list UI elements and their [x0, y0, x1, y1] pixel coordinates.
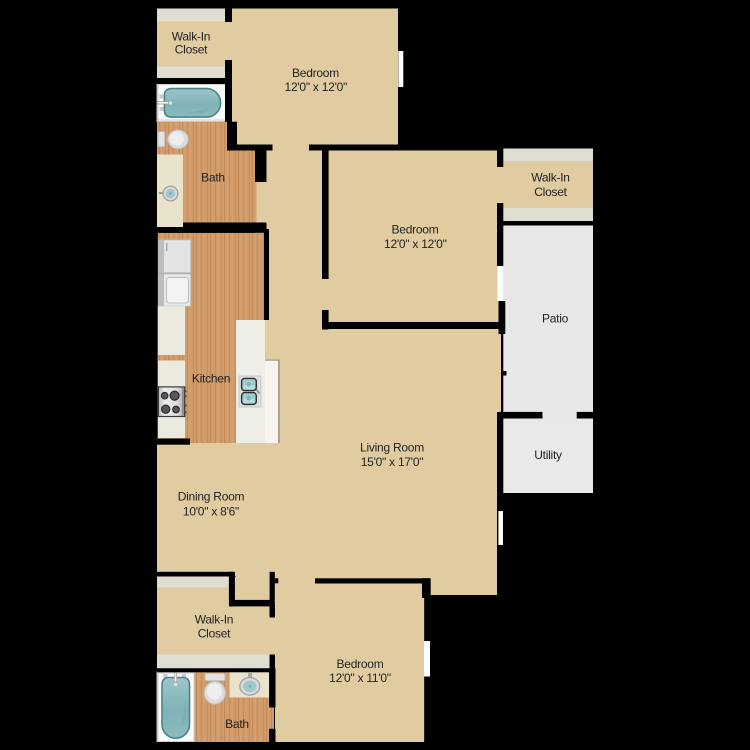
svg-text:Closet: Closet: [175, 43, 208, 57]
svg-text:Walk-In: Walk-In: [531, 170, 569, 184]
svg-text:Kitchen: Kitchen: [192, 371, 230, 385]
svg-text:Living Room: Living Room: [360, 440, 424, 454]
svg-text:10'0" x 8'6": 10'0" x 8'6": [183, 505, 239, 519]
svg-text:Walk-In: Walk-In: [195, 613, 233, 627]
svg-text:Bath: Bath: [225, 717, 249, 731]
svg-text:Walk-In: Walk-In: [172, 29, 210, 43]
svg-text:Bath: Bath: [201, 170, 225, 184]
svg-text:Patio: Patio: [542, 311, 569, 325]
svg-text:Closet: Closet: [534, 185, 567, 199]
svg-text:Utility: Utility: [534, 448, 562, 462]
svg-text:Bedroom: Bedroom: [337, 657, 384, 671]
svg-text:15'0" x 17'0": 15'0" x 17'0": [361, 455, 424, 469]
svg-text:Bedroom: Bedroom: [292, 66, 339, 80]
svg-text:Bedroom: Bedroom: [392, 222, 439, 236]
svg-text:Closet: Closet: [198, 626, 231, 640]
svg-text:12'0" x 12'0": 12'0" x 12'0": [384, 237, 447, 251]
svg-text:12'0" x 12'0": 12'0" x 12'0": [285, 80, 348, 94]
svg-text:Dining Room: Dining Room: [178, 490, 245, 504]
svg-text:12'0" x 11'0": 12'0" x 11'0": [329, 671, 391, 685]
